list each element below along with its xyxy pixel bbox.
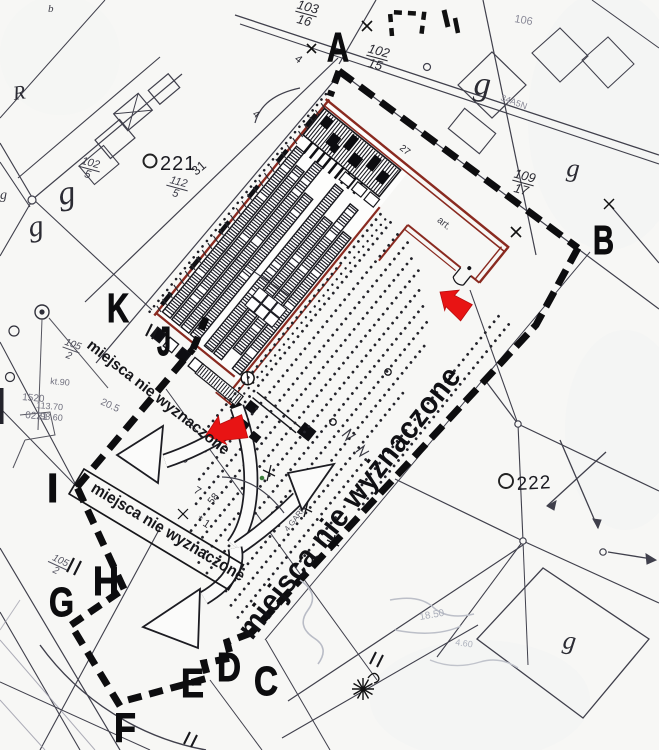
svg-text:kt.90: kt.90 (50, 376, 70, 388)
svg-text:K: K (107, 285, 129, 331)
svg-text:D: D (217, 644, 241, 690)
svg-text:J: J (157, 318, 171, 364)
svg-text:H: H (93, 558, 119, 604)
svg-text:1520: 1520 (22, 392, 46, 405)
svg-text:B: B (593, 217, 614, 263)
svg-text:G: G (49, 579, 74, 625)
svg-text:A: A (327, 24, 349, 70)
svg-text:222: 222 (516, 472, 552, 495)
svg-text:g: g (472, 65, 492, 103)
svg-text:I: I (47, 465, 58, 511)
svg-text:F: F (114, 705, 136, 750)
svg-text:b: b (48, 3, 54, 15)
svg-text:C: C (254, 658, 278, 704)
svg-text:E: E (181, 660, 204, 706)
svg-text:g: g (0, 188, 7, 203)
svg-text:0221: 0221 (25, 410, 49, 423)
svg-text:g: g (565, 153, 580, 183)
